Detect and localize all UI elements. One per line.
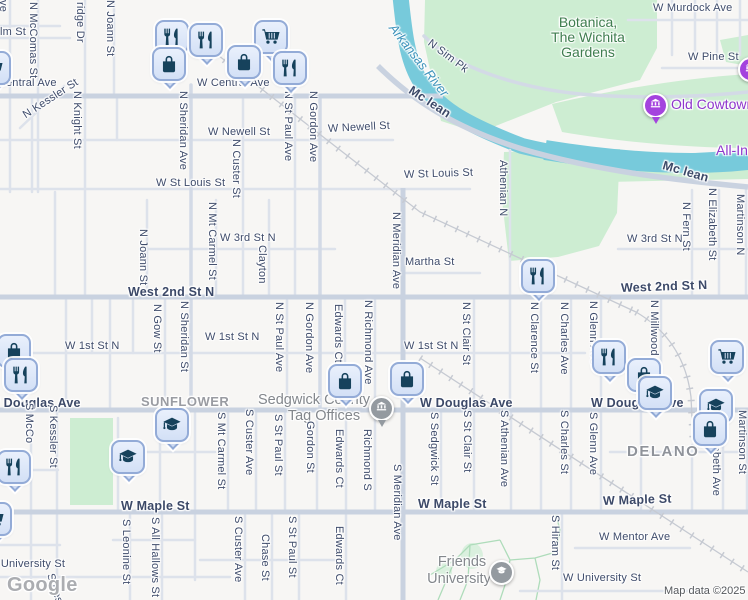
bag-icon xyxy=(227,45,261,79)
education-icon xyxy=(638,376,672,410)
museum-icon xyxy=(375,400,388,418)
poi-label[interactable]: Gardens xyxy=(561,44,615,60)
poi-pointer xyxy=(378,420,386,427)
restaurant-pin[interactable] xyxy=(592,340,626,374)
bag-icon xyxy=(390,362,424,396)
education-icon xyxy=(155,408,189,442)
restaurant-pin[interactable] xyxy=(273,51,307,85)
restaurant-pin[interactable] xyxy=(521,259,555,293)
museum-icon xyxy=(744,61,748,79)
restaurant-icon xyxy=(0,450,31,484)
poi-label[interactable]: Old Cowtown xyxy=(671,96,748,112)
cart-pin[interactable] xyxy=(0,502,12,536)
restaurant-icon xyxy=(521,259,555,293)
cart-icon xyxy=(710,340,744,374)
poi-label[interactable]: All-In xyxy=(716,142,748,158)
restaurant-icon xyxy=(189,23,223,57)
bag-pin[interactable] xyxy=(390,362,424,396)
poi-label[interactable]: Botanica, xyxy=(559,14,617,30)
restaurant-pin[interactable] xyxy=(4,358,38,392)
bag-pin[interactable] xyxy=(328,364,362,398)
google-logo[interactable]: Google xyxy=(7,574,78,597)
bag-pin[interactable] xyxy=(693,412,727,446)
cart-pin[interactable] xyxy=(0,51,11,85)
friends-university-poi[interactable] xyxy=(489,560,514,585)
poi-label[interactable]: Tag Offices xyxy=(288,408,360,424)
basemap xyxy=(0,0,748,600)
bag-icon xyxy=(693,412,727,446)
map-canvas[interactable]: W Murdock AveW Pine StW Central AveW Cen… xyxy=(0,0,748,600)
museum-icon xyxy=(649,97,662,115)
education-icon xyxy=(111,440,145,474)
poi-label[interactable]: The Wichita xyxy=(551,29,625,45)
bag-icon xyxy=(328,364,362,398)
restaurant-icon xyxy=(592,340,626,374)
cart-icon xyxy=(0,502,12,536)
sedgwick-tag-offices-poi[interactable] xyxy=(369,396,394,421)
education-pin[interactable] xyxy=(638,376,672,410)
poi-label[interactable]: Friends xyxy=(438,554,486,570)
restaurant-pin[interactable] xyxy=(189,23,223,57)
old-cowtown-poi[interactable] xyxy=(643,93,668,118)
restaurant-icon xyxy=(4,358,38,392)
poi-label[interactable]: University xyxy=(427,571,491,587)
bag-icon xyxy=(152,47,186,81)
education-pin[interactable] xyxy=(155,408,189,442)
bag-pin[interactable] xyxy=(227,45,261,79)
poi-pointer xyxy=(652,117,660,124)
graduation-cap-icon xyxy=(495,564,508,582)
education-pin[interactable] xyxy=(111,440,145,474)
cart-pin[interactable] xyxy=(710,340,744,374)
restaurant-icon xyxy=(273,51,307,85)
cart-icon xyxy=(0,51,11,85)
restaurant-pin[interactable] xyxy=(0,450,31,484)
bag-pin[interactable] xyxy=(152,47,186,81)
map-attribution: Map data ©2025 xyxy=(664,585,746,597)
